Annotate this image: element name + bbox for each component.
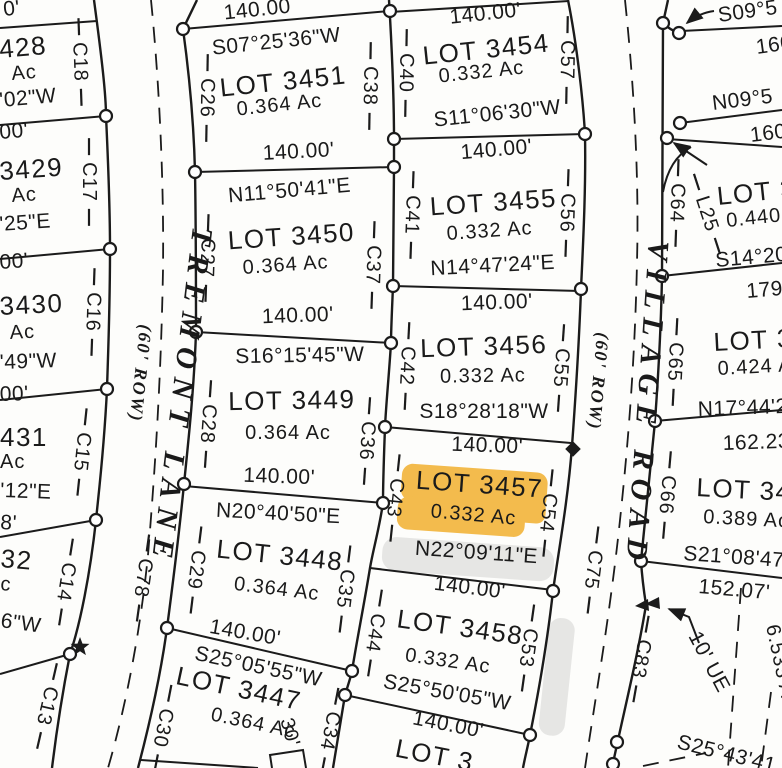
curve-tick — [94, 268, 95, 285]
curve-label-c83: C83 — [627, 638, 656, 681]
curve-label-c30: C30 — [148, 706, 177, 749]
curve-tick — [371, 292, 372, 309]
curve-tick — [210, 380, 211, 397]
corner-monument — [607, 758, 619, 768]
plat-map: TREMONT LANE VILLAGE ROAD (60' ROW) (60'… — [0, 0, 782, 768]
curve-label-c38: C38 — [359, 66, 382, 106]
curve-tick — [565, 240, 566, 257]
lot-3449-name: LOT 3449 — [228, 384, 356, 416]
cutoff-label: 0' — [2, 0, 21, 21]
curve-tick — [37, 732, 41, 749]
distance-label: 140.00' — [448, 0, 522, 29]
bearing-label: N20°40'50"E — [216, 499, 342, 528]
curve-label-c43: C43 — [382, 477, 408, 519]
left-column-labels: 0' 428 Ac '02"W 00' 3429 Ac '25"E 00' 34… — [0, 0, 64, 638]
curve-tick — [81, 89, 82, 106]
curve-tick — [348, 545, 350, 562]
curve-label-c41: C41 — [400, 195, 423, 235]
curve-tick — [70, 539, 73, 556]
corner-monument — [379, 421, 391, 433]
curve-tick — [374, 221, 375, 238]
lot-area-label: 0.424 A — [717, 354, 782, 380]
distance-label: 140.00' — [243, 464, 316, 489]
curve-label-c65: C65 — [663, 342, 687, 383]
distance-label: 140.00' — [461, 290, 534, 315]
curve-tick — [522, 675, 524, 692]
grey-smudge — [538, 617, 576, 737]
curve-label-c44: C44 — [361, 612, 389, 655]
corner-monument — [346, 665, 358, 677]
corner-monument — [177, 23, 189, 35]
corner-monument — [388, 133, 400, 145]
corner-monument — [611, 736, 623, 748]
lot-3448-name: LOT 3448 — [215, 533, 345, 576]
curve-label-c27: C27 — [195, 238, 218, 278]
curve-label-c34: C34 — [315, 709, 344, 752]
bearing-label: N09°5 — [711, 85, 774, 115]
distance-label: 160 — [754, 31, 782, 59]
corner-monument — [189, 166, 201, 178]
curve-tick — [678, 159, 679, 176]
curve-tick — [551, 469, 553, 486]
cutoff-label: '25"E — [0, 209, 52, 236]
corner-monument — [64, 648, 76, 660]
bearing-label: S11°06'30"W — [433, 95, 562, 131]
distance-label: 162.23 — [722, 430, 782, 455]
curve-label-c64: C64 — [665, 183, 688, 223]
right-column-labels: S09°5 160 N09°5 160 LOT 3 0.440 S14°20 1… — [675, 0, 782, 768]
lot-3458-name: LOT 3458 — [395, 603, 525, 650]
plat-map-svg: TREMONT LANE VILLAGE ROAD (60' ROW) (60'… — [0, 0, 782, 768]
bearing-label: S09°5 — [716, 0, 779, 27]
curve-tick — [646, 616, 649, 633]
curve-tick — [532, 605, 534, 622]
curve-tick — [669, 451, 670, 468]
curve-label-c40: C40 — [395, 53, 418, 93]
curve-tick — [322, 757, 325, 768]
curve-tick — [368, 660, 371, 677]
curve-tick — [78, 18, 79, 35]
curve-tick — [413, 171, 414, 188]
curve-tick — [398, 454, 400, 471]
cutoff-label: 00' — [0, 119, 29, 144]
curve-label-c75: C75 — [580, 549, 607, 591]
curve-tick — [568, 169, 569, 186]
curve-label-c26: C26 — [196, 78, 219, 118]
curve-label-c42: C42 — [395, 346, 419, 387]
curve-tick — [405, 393, 406, 410]
cutoff-label: Ac — [11, 61, 38, 85]
division-line — [0, 21, 97, 28]
cutoff-label: 00' — [0, 249, 29, 274]
lot-area-label: 0.440 — [725, 204, 782, 232]
street-name-village: VILLAGE ROAD — [619, 240, 675, 570]
lot-3450-name: LOT 3450 — [227, 217, 356, 256]
distance-label: 160 — [749, 120, 782, 147]
corner-monument — [661, 132, 673, 144]
bearing-label: N17°44'2 — [697, 395, 782, 421]
curve-tick — [199, 526, 201, 543]
corner-monument — [104, 243, 116, 255]
curve-tick — [364, 468, 365, 485]
lot-area-label: 0.364 Ac — [242, 251, 329, 279]
village-row-label: (60' ROW) — [583, 332, 613, 432]
bearing-label: N14°47'24"E — [430, 251, 556, 280]
cutoff-label: '12"E — [0, 479, 52, 504]
cutoff-label: 431 — [0, 422, 48, 452]
lot-area-label: 0.332 Ac — [446, 217, 533, 245]
lot-partial-name: LOT 347 — [696, 472, 782, 508]
curve-label-c18: C18 — [68, 42, 91, 82]
curve-tick — [408, 322, 409, 339]
curve-tick — [137, 605, 139, 622]
bearing-label: S25°50'05"W — [381, 670, 512, 715]
division-line — [681, 26, 782, 31]
lot-3455-name: LOT 3455 — [429, 183, 558, 222]
corner-monument — [673, 27, 685, 39]
curve-label-c16: C16 — [81, 292, 104, 332]
arrowhead-icon — [635, 599, 649, 611]
curve-tick — [410, 242, 411, 259]
corner-monument — [657, 17, 669, 29]
division-line — [141, 760, 258, 768]
corner-monument — [101, 383, 113, 395]
curve-tick — [694, 174, 699, 190]
curve-tick — [85, 408, 87, 425]
curve-label-c29: C29 — [183, 549, 210, 591]
division-line — [0, 654, 70, 674]
curve-tick — [588, 597, 590, 614]
curve-label-c36: C36 — [355, 420, 380, 461]
curve-tick — [340, 616, 342, 633]
corner-monument — [384, 5, 396, 17]
lot-partial-name: LOT 34 — [713, 322, 782, 357]
cutoff-label: 8' — [0, 511, 18, 535]
lot-area-label: 0.332 Ac — [440, 364, 526, 387]
distance-label: 140.00' — [460, 135, 533, 164]
corner-monument — [387, 280, 399, 292]
cutoff-label: Ac — [9, 321, 35, 344]
corner-monument — [90, 514, 102, 526]
curve-tick — [91, 339, 92, 356]
bearing-label: S07°25'36"W — [211, 23, 342, 59]
corner-monument — [575, 283, 587, 295]
cutoff-label: '49"W — [0, 349, 57, 374]
setback-label: 30' — [275, 716, 304, 750]
corner-monument — [385, 337, 397, 349]
curve-label-c14: C14 — [52, 561, 80, 604]
cutoff-label: c — [0, 573, 12, 596]
lot-3456-name: LOT 3456 — [420, 329, 548, 363]
division-line — [196, 332, 391, 343]
corner-monument — [339, 689, 351, 701]
distance-label: 140.00' — [262, 303, 335, 328]
cutoff-label: 3430 — [0, 288, 64, 321]
curve-label-c15: C15 — [69, 431, 95, 473]
cutoff-label: 32 — [0, 543, 34, 576]
corner-monument — [388, 161, 400, 173]
area-partial-label: 6.533 A — [761, 622, 782, 700]
curve-label-c57: C57 — [556, 40, 579, 80]
cutoff-label: 428 — [0, 30, 48, 64]
cutoff-label: 6"W — [0, 609, 43, 637]
curve-tick — [205, 285, 206, 302]
curve-tick — [208, 214, 209, 231]
distance-label: 179 — [745, 277, 782, 303]
bearing-label: S16°15'45"W — [235, 343, 365, 368]
curve-tick — [673, 389, 674, 406]
distance-label: 140.00' — [208, 615, 283, 650]
distance-label: 140.00' — [451, 433, 524, 458]
bearing-label: S14°20 — [714, 243, 782, 272]
corner-monument — [547, 585, 559, 597]
lot-area-label: 0.364 Ac — [245, 422, 331, 444]
tremont-row-label: (60' ROW) — [125, 323, 156, 423]
curve-tick — [168, 685, 171, 702]
curve-tick — [596, 526, 598, 543]
curve-tick — [675, 230, 676, 247]
cutoff-label: '02"W — [0, 84, 57, 112]
corner-monument — [161, 622, 173, 634]
bearing-label: S18°28'18"W — [419, 400, 548, 423]
lot-area-label: 0.332 Ac — [404, 644, 492, 678]
cutoff-label: Ac — [0, 451, 25, 473]
curve-tick — [59, 609, 62, 626]
cutoff-label: 00' — [0, 382, 29, 406]
corner-monument — [100, 110, 112, 122]
corner-monument — [674, 117, 686, 129]
curve-label-c66: C66 — [654, 474, 679, 515]
curve-tick — [335, 688, 338, 705]
division-line — [184, 486, 383, 503]
division-line — [393, 286, 580, 291]
bearing-label: N11°50'41"E — [227, 174, 352, 208]
curve-tick — [369, 397, 370, 414]
curve-tick — [558, 395, 559, 412]
curve-tick — [633, 685, 636, 702]
cutoff-label: Ac — [11, 183, 38, 207]
curve-tick — [191, 597, 193, 614]
curve-label-c55: C55 — [549, 347, 574, 388]
lot-area-label: 0.364 Ac — [233, 573, 321, 605]
curve-tick — [205, 451, 206, 468]
distance-label: 140.00' — [262, 138, 335, 165]
curve-label-c78: C78 — [129, 557, 156, 599]
lot-area-label: 0.389 Ac — [703, 506, 782, 532]
division-line — [195, 167, 394, 172]
curve-tick — [676, 318, 677, 335]
easement-label: 10' UE — [684, 628, 735, 697]
curve-tick — [663, 522, 664, 539]
curve-label-c56: C56 — [555, 193, 578, 233]
cutoff-label: 3429 — [0, 152, 64, 186]
curve-label-c37: C37 — [361, 245, 384, 285]
curve-tick — [77, 479, 79, 496]
curve-tick — [563, 324, 564, 341]
distance-label: 152.07' — [698, 575, 771, 604]
corner-monument — [524, 729, 536, 741]
curve-tick — [379, 590, 382, 607]
partial-structure — [270, 750, 306, 768]
curve-label-c17: C17 — [78, 162, 100, 202]
corner-monument — [579, 128, 591, 140]
leader-arrow — [687, 11, 714, 23]
curve-label-c28: C28 — [196, 403, 221, 444]
curve-tick — [53, 663, 57, 680]
